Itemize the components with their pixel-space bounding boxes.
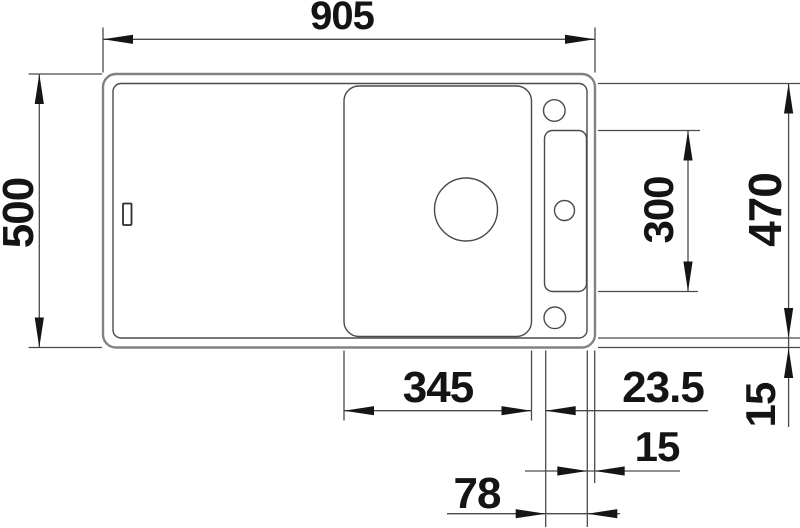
arrowhead xyxy=(683,262,692,292)
dim-label-rim-width-right: 15 xyxy=(635,426,680,468)
arrowhead xyxy=(784,308,793,338)
arrowhead xyxy=(784,84,793,114)
arrowhead xyxy=(344,406,374,415)
arrowhead xyxy=(546,406,576,415)
cutting-board xyxy=(344,86,532,337)
dim-label-inner-depth: 470 xyxy=(742,173,788,247)
arrowhead xyxy=(35,318,44,348)
arrowhead xyxy=(35,74,44,104)
ledge-hole-middle xyxy=(555,201,575,221)
arrowhead xyxy=(595,466,625,475)
dim-label-overall-depth: 500 xyxy=(0,178,41,248)
technical-drawing-canvas: 905 500 470 300 345 23.5 15 15 78 xyxy=(0,0,800,528)
ledge-hole-bottom xyxy=(544,307,566,329)
arrowhead xyxy=(784,348,793,378)
dim-label-board-to-ledge-gap: 23.5 xyxy=(622,366,704,410)
arrowhead xyxy=(565,35,595,44)
sink-dimension-drawing xyxy=(0,0,800,528)
arrowhead xyxy=(103,35,133,44)
dim-label-ledge-width: 78 xyxy=(454,472,501,516)
dim-label-ledge-recess-length: 300 xyxy=(638,176,680,243)
accessory-ledge-recess xyxy=(545,131,587,292)
dim-label-board-width: 345 xyxy=(403,366,473,410)
overflow-slot xyxy=(123,204,132,226)
dim-label-rim-width-bottom: 15 xyxy=(740,383,782,428)
ledge-hole-top xyxy=(544,100,566,122)
arrowhead xyxy=(502,406,532,415)
sink-outline xyxy=(103,74,595,348)
arrowhead xyxy=(516,509,546,518)
dim-label-overall-width: 905 xyxy=(310,0,374,36)
arrowhead xyxy=(557,466,587,475)
arrowhead xyxy=(683,131,692,161)
arrowhead xyxy=(587,509,617,518)
